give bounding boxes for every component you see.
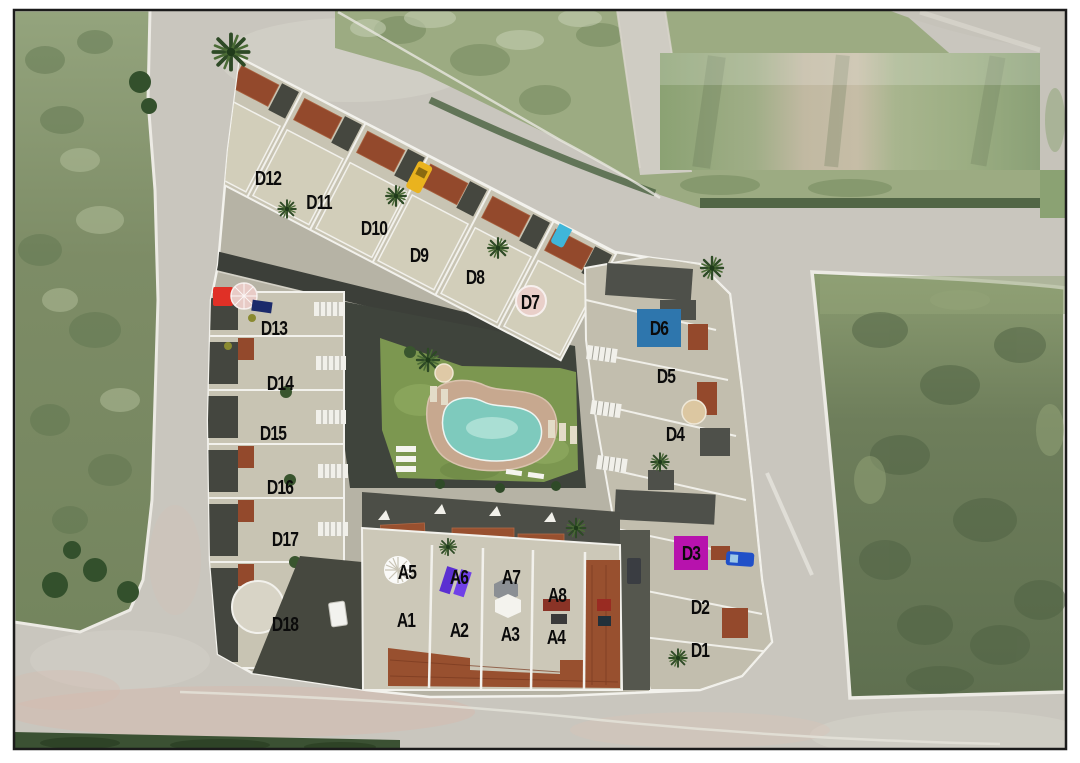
unit-label-A7: A7 bbox=[502, 566, 521, 588]
unit-label-D1: D1 bbox=[691, 639, 710, 661]
hedge-top-right bbox=[700, 198, 1045, 208]
blur-patch bbox=[660, 53, 1040, 170]
unit-label-A8: A8 bbox=[548, 584, 567, 606]
blue-truck bbox=[726, 551, 755, 567]
unit-label-D3: D3 bbox=[682, 542, 701, 564]
palm-icon bbox=[417, 349, 439, 371]
unit-label-D16: D16 bbox=[267, 476, 294, 498]
unit-label-D7: D7 bbox=[521, 291, 540, 313]
dark-roof-east bbox=[605, 263, 693, 301]
unit-label-A6: A6 bbox=[450, 566, 469, 588]
unit-label-D14: D14 bbox=[267, 372, 294, 394]
unit-label-D6: D6 bbox=[650, 317, 669, 339]
white-van bbox=[328, 601, 347, 627]
unit-label-D4: D4 bbox=[666, 423, 685, 445]
aerial-photo: D12D11D10D9D8D7D13D14D15D16D17D18D6D5D4D… bbox=[0, 8, 1080, 760]
dark-car bbox=[627, 558, 641, 584]
unit-label-A3: A3 bbox=[501, 623, 520, 645]
unit-label-D11: D11 bbox=[306, 191, 332, 213]
lane-center bbox=[620, 530, 650, 690]
siteplan-page: D12D11D10D9D8D7D13D14D15D16D17D18D6D5D4D… bbox=[0, 0, 1080, 763]
siteplan-image: D12D11D10D9D8D7D13D14D15D16D17D18D6D5D4D… bbox=[0, 0, 1080, 763]
unit-label-A5: A5 bbox=[398, 561, 417, 583]
red-car bbox=[213, 287, 233, 306]
tan-umbrella bbox=[682, 400, 706, 424]
unit-label-D10: D10 bbox=[361, 217, 388, 239]
lawn-umbrella bbox=[435, 364, 453, 382]
unit-label-D15: D15 bbox=[260, 422, 287, 444]
unit-label-A4: A4 bbox=[547, 626, 566, 648]
unit-label-A1: A1 bbox=[397, 609, 416, 631]
unit-label-D17: D17 bbox=[272, 528, 299, 550]
unit-label-D8: D8 bbox=[466, 266, 485, 288]
field-right-edge-strip bbox=[1040, 170, 1065, 218]
unit-label-D9: D9 bbox=[410, 244, 429, 266]
unit-label-D12: D12 bbox=[255, 167, 282, 189]
unit-label-D2: D2 bbox=[691, 596, 710, 618]
unit-label-D18: D18 bbox=[272, 613, 299, 635]
unit-label-D13: D13 bbox=[261, 317, 288, 339]
unit-label-D5: D5 bbox=[657, 365, 676, 387]
unit-label-A2: A2 bbox=[450, 619, 469, 641]
